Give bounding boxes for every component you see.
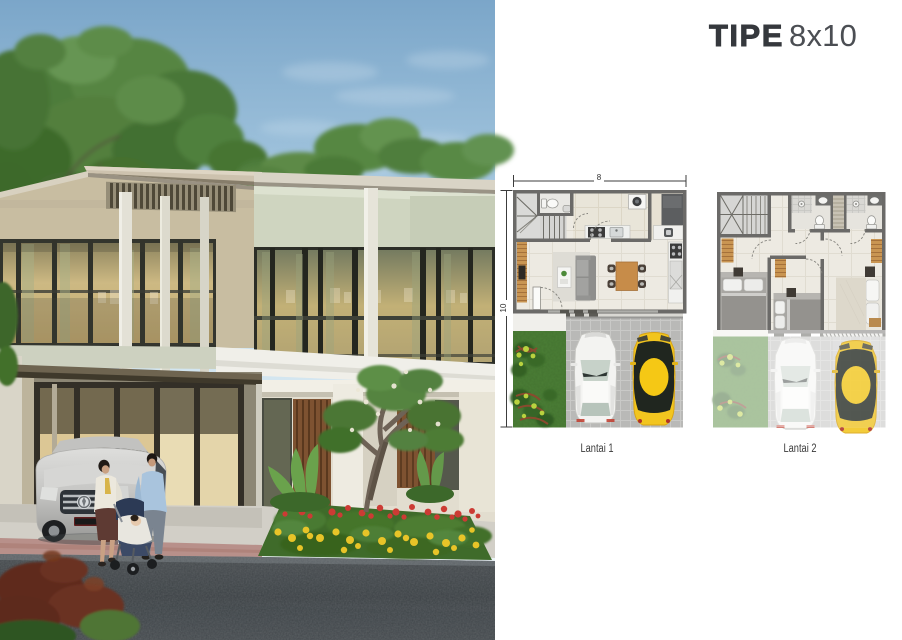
svg-text:10: 10 xyxy=(499,303,508,312)
svg-text:Lantai 2: Lantai 2 xyxy=(784,443,817,455)
svg-text:Lantai 1: Lantai 1 xyxy=(581,443,614,455)
svg-text:TIPE: TIPE xyxy=(709,18,784,53)
svg-text:8: 8 xyxy=(597,173,602,182)
svg-text:8x10: 8x10 xyxy=(789,18,857,53)
